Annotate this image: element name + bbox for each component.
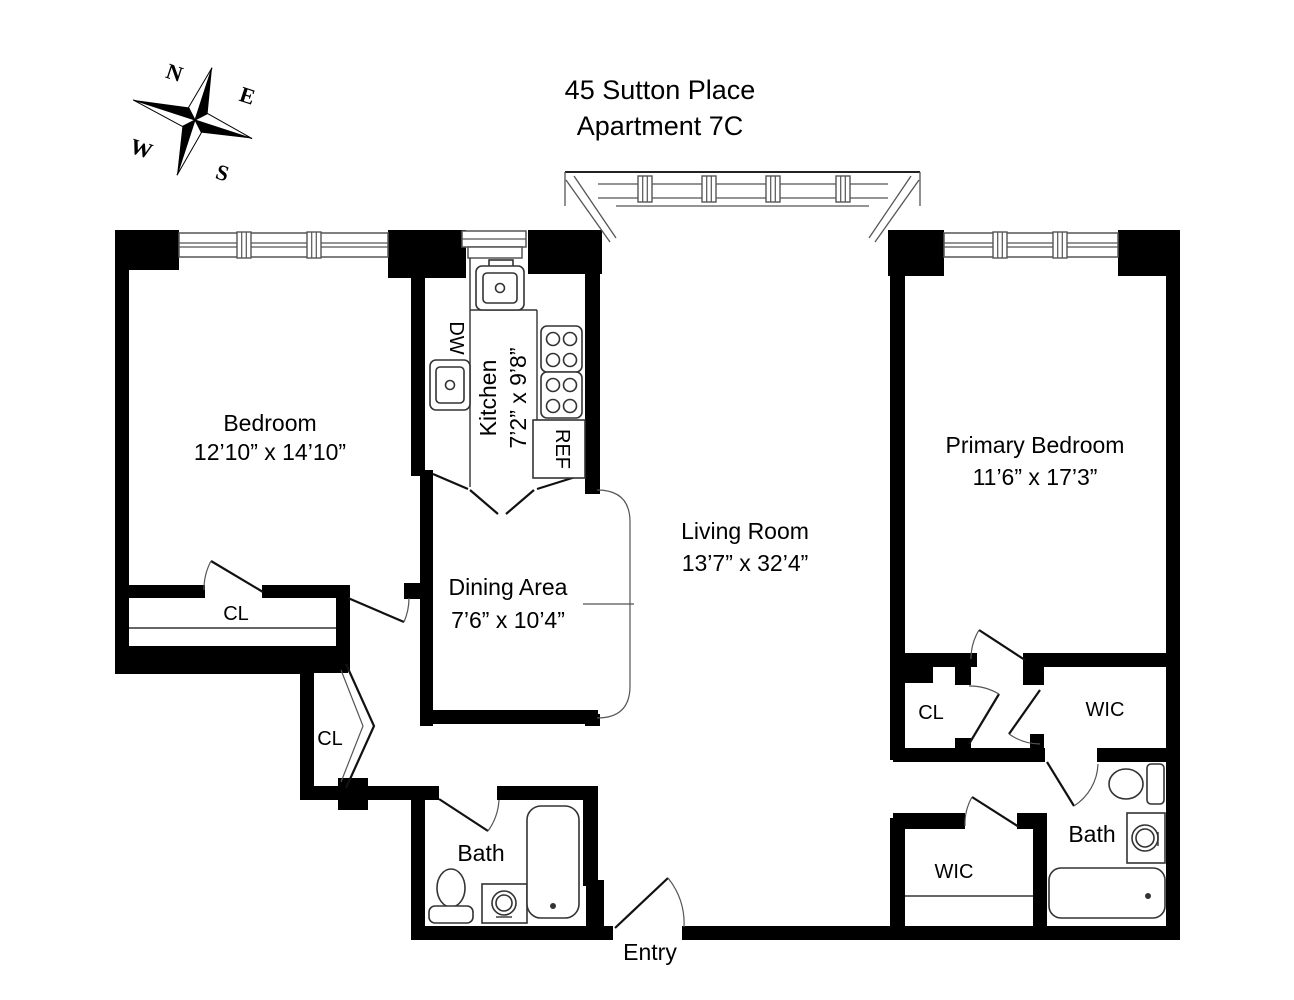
bath2-label: Bath bbox=[1068, 821, 1115, 847]
bath2-sink-icon bbox=[1127, 813, 1165, 863]
plan-title-line2: Apartment 7C bbox=[577, 111, 744, 141]
bath2-toilet-icon bbox=[1109, 764, 1164, 804]
closet3-label: CL bbox=[918, 702, 944, 724]
bath1-sink-icon bbox=[482, 884, 527, 923]
entry-door bbox=[615, 878, 684, 928]
compass-rose: N E W S bbox=[115, 48, 269, 194]
bath1-toilet-icon bbox=[429, 869, 473, 923]
primary-bedroom-label: Primary Bedroom bbox=[946, 432, 1125, 458]
bedroom-window bbox=[179, 232, 388, 258]
compass-n-label: N bbox=[163, 58, 186, 87]
compass-w-label: W bbox=[127, 133, 156, 164]
bath1-door bbox=[439, 799, 499, 831]
bath1-label: Bath bbox=[457, 840, 504, 866]
wic2-label: WIC bbox=[935, 861, 974, 883]
compass-e-label: E bbox=[237, 81, 259, 109]
primary-bedroom-dims: 11’6” x 17’3” bbox=[973, 464, 1098, 490]
bath1-tub-icon bbox=[527, 806, 579, 918]
bath2-tub-icon bbox=[1049, 868, 1165, 918]
dishwasher-sink-icon bbox=[430, 360, 470, 410]
walls bbox=[115, 230, 1180, 940]
primary-window bbox=[944, 232, 1118, 258]
dining-area-dims: 7’6” x 10’4” bbox=[451, 607, 565, 633]
compass-s-label: S bbox=[213, 159, 232, 187]
bedroom-door bbox=[348, 598, 409, 622]
living-room-label: Living Room bbox=[681, 518, 809, 544]
floor-plan-svg: N E W S 45 Sutton Place Apartment 7C Bed… bbox=[0, 0, 1294, 1000]
doors bbox=[204, 474, 1098, 928]
living-room-dims: 13’7” x 32’4” bbox=[682, 550, 809, 576]
wic1-label: WIC bbox=[1086, 699, 1125, 721]
bedroom-closet-door bbox=[204, 561, 263, 592]
plan-title-line1: 45 Sutton Place bbox=[565, 75, 756, 105]
bath2-door bbox=[1047, 762, 1098, 806]
dining-area-label: Dining Area bbox=[449, 574, 568, 600]
wic2-door bbox=[965, 797, 1019, 827]
dishwasher-label: DW bbox=[445, 321, 467, 354]
stove-icon bbox=[541, 326, 582, 418]
bedroom-label: Bedroom bbox=[223, 410, 316, 436]
kitchen-window bbox=[462, 231, 526, 258]
kitchen-sink-icon bbox=[476, 260, 524, 310]
bedroom-dims: 12’10” x 14’10” bbox=[194, 439, 346, 465]
windows bbox=[179, 172, 1118, 258]
kitchen-label: Kitchen bbox=[475, 360, 501, 437]
entry-label: Entry bbox=[623, 939, 677, 965]
refrigerator-label: REF bbox=[551, 429, 573, 469]
kitchen-double-doors bbox=[433, 474, 585, 514]
closet2-label: CL bbox=[317, 728, 343, 750]
dining-living-opening bbox=[583, 490, 634, 718]
living-room-bay-window bbox=[565, 172, 920, 242]
closet2-door bbox=[969, 686, 999, 744]
labels: 45 Sutton Place Apartment 7C Bedroom 12’… bbox=[194, 75, 1125, 965]
primary-bedroom-door bbox=[971, 630, 1025, 660]
kitchen-dims: 7’2” x 9’8” bbox=[505, 348, 531, 449]
hall-closet-bifold-door bbox=[341, 664, 374, 788]
floor-plan: N E W S 45 Sutton Place Apartment 7C Bed… bbox=[0, 0, 1294, 1000]
closet1-label: CL bbox=[223, 603, 249, 625]
